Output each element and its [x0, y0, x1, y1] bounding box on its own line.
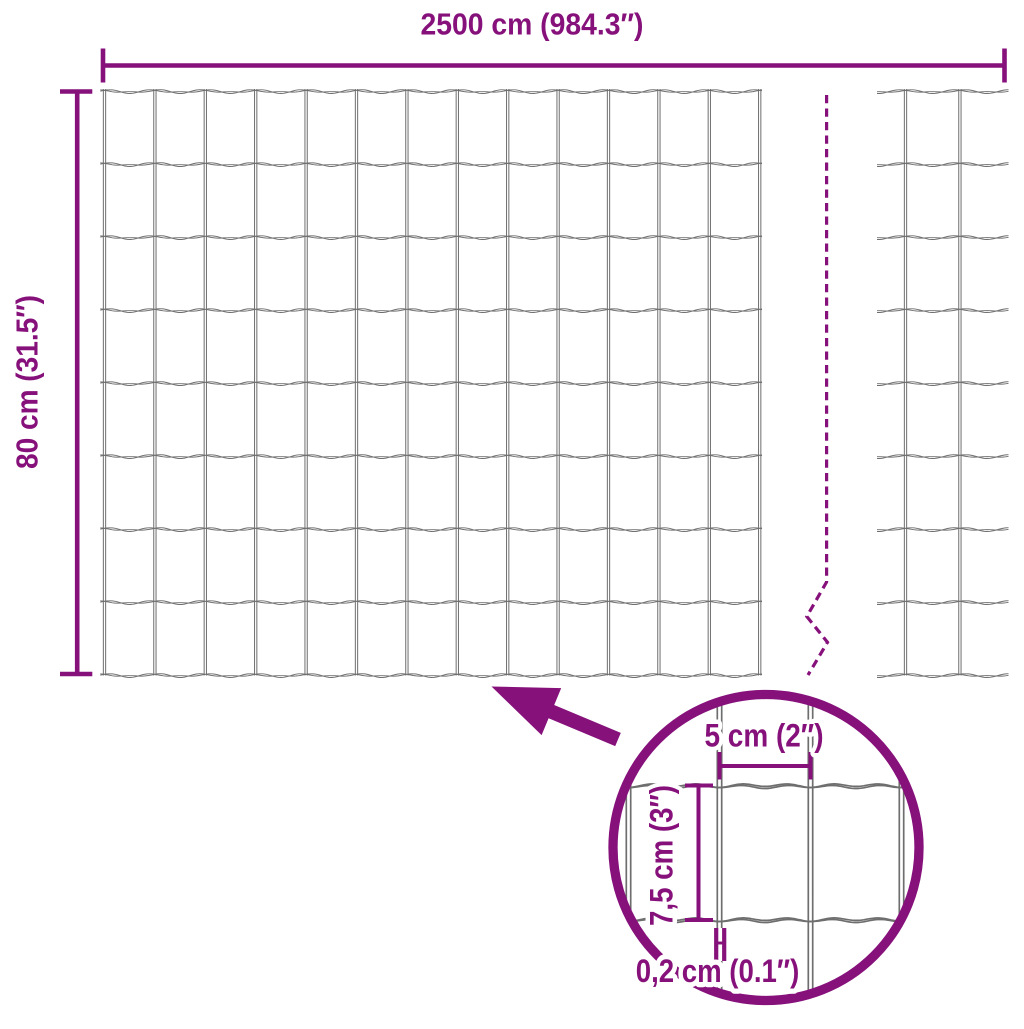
svg-text:2500 cm (984.3″): 2500 cm (984.3″) [421, 8, 644, 42]
svg-text:7,5 cm (3″): 7,5 cm (3″) [644, 785, 680, 926]
svg-text:0,2 cm (0.1″): 0,2 cm (0.1″) [636, 953, 800, 989]
svg-text:80 cm (31.5″): 80 cm (31.5″) [11, 295, 45, 469]
svg-text:5 cm (2″): 5 cm (2″) [705, 718, 824, 754]
